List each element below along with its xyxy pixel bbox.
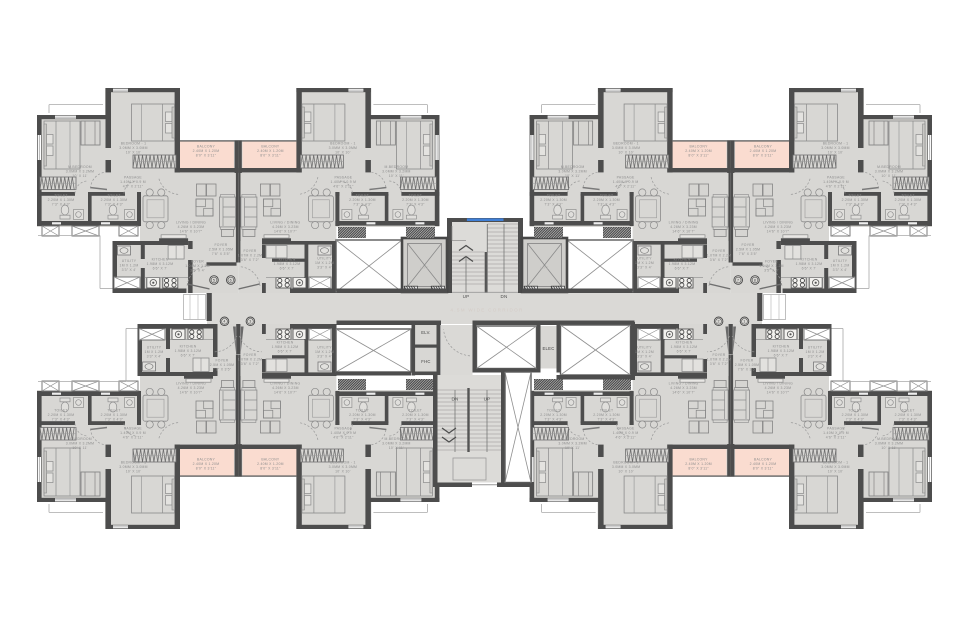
svg-text:8'0" X 3'11": 8'0" X 3'11" xyxy=(260,154,281,158)
svg-text:6'6" X 7': 6'6" X 7' xyxy=(278,349,293,353)
svg-text:3'6" X 7'2": 3'6" X 7'2" xyxy=(710,362,729,366)
svg-text:1M X 1.2M: 1M X 1.2M xyxy=(315,350,334,354)
svg-text:7'3" X 4'3": 7'3" X 4'3" xyxy=(105,203,124,207)
svg-text:4'6" X 2'11": 4'6" X 2'11" xyxy=(826,435,847,439)
svg-text:3.0MM X 3.2MM: 3.0MM X 3.2MM xyxy=(66,442,95,446)
svg-text:TOILET: TOILET xyxy=(409,409,423,413)
svg-text:KITCHEN: KITCHEN xyxy=(277,341,294,345)
svg-text:2.20M X 1.30M: 2.20M X 1.30M xyxy=(402,198,429,202)
svg-text:2.20M X 1.30M: 2.20M X 1.30M xyxy=(895,198,922,202)
svg-text:3.0MM X 3.2MM: 3.0MM X 3.2MM xyxy=(382,442,411,446)
svg-text:UTILITY: UTILITY xyxy=(147,346,162,350)
svg-text:3.0MM X 3.2MM: 3.0MM X 3.2MM xyxy=(558,170,587,174)
svg-text:BALCONY: BALCONY xyxy=(754,145,773,149)
svg-text:2.40M X 1.20M: 2.40M X 1.20M xyxy=(257,462,284,466)
svg-text:7: 7 xyxy=(737,278,739,282)
svg-text:ELEC: ELEC xyxy=(542,346,554,351)
svg-text:3'6" X 7'2": 3'6" X 7'2" xyxy=(710,258,729,262)
svg-text:10' X 11': 10' X 11' xyxy=(389,446,404,450)
svg-text:7'3" X 4'3": 7'3" X 4'3" xyxy=(544,203,563,207)
svg-text:3'3" X 4': 3'3" X 4' xyxy=(833,268,848,272)
svg-text:10' X 11': 10' X 11' xyxy=(72,446,87,450)
svg-text:3'6" X 7'2": 3'6" X 7'2" xyxy=(241,362,260,366)
svg-text:2.5M X 1.05M: 2.5M X 1.05M xyxy=(210,363,234,367)
svg-text:PASSAGE: PASSAGE xyxy=(827,427,845,431)
svg-text:2.40M X 1.20M: 2.40M X 1.20M xyxy=(750,149,777,153)
svg-text:2.40M X 1.20M: 2.40M X 1.20M xyxy=(685,462,712,466)
svg-text:3.0MM X 3.2MM: 3.0MM X 3.2MM xyxy=(382,170,411,174)
svg-text:1M X 1.2M: 1M X 1.2M xyxy=(315,261,334,265)
svg-text:2.20M X 1.30M: 2.20M X 1.30M xyxy=(593,198,620,202)
svg-text:1M X 1.2M: 1M X 1.2M xyxy=(635,350,654,354)
svg-text:BEDROOM - 1: BEDROOM - 1 xyxy=(613,461,639,465)
svg-text:TOILET: TOILET xyxy=(54,194,68,198)
svg-text:2.20M X 1.30M: 2.20M X 1.30M xyxy=(349,198,376,202)
svg-text:1.07M X 2.2M: 1.07M X 2.2M xyxy=(238,254,262,258)
svg-text:4'6" X 2'11": 4'6" X 2'11" xyxy=(123,435,144,439)
svg-text:7'6" X 3'5": 7'6" X 3'5" xyxy=(213,367,232,371)
svg-text:2.5M X 1.05M: 2.5M X 1.05M xyxy=(736,248,760,252)
svg-text:14'6" X 10'7": 14'6" X 10'7" xyxy=(767,230,790,234)
svg-text:6'6" X 7': 6'6" X 7' xyxy=(181,353,196,357)
svg-text:1.40M X 0.9 M: 1.40M X 0.9 M xyxy=(331,431,357,435)
svg-text:M.BEDROOM: M.BEDROOM xyxy=(384,165,408,169)
svg-text:1.40M X 0.9 M: 1.40M X 0.9 M xyxy=(120,431,146,435)
svg-text:3'3" X 4': 3'3" X 4' xyxy=(317,265,332,269)
svg-text:2.20M X 1.30M: 2.20M X 1.30M xyxy=(101,413,128,417)
svg-text:LIVING / DINING: LIVING / DINING xyxy=(270,382,300,386)
svg-text:TOILET: TOILET xyxy=(547,409,561,413)
svg-text:1.04M X 1.2M: 1.04M X 1.2M xyxy=(185,264,209,268)
svg-text:4.26M X 3.23M: 4.26M X 3.23M xyxy=(670,386,697,390)
svg-text:UTILITY: UTILITY xyxy=(808,346,823,350)
svg-text:4'6" X 2'11": 4'6" X 2'11" xyxy=(333,435,354,439)
svg-text:3'5" X 4': 3'5" X 4' xyxy=(190,268,205,272)
svg-text:M.BEDROOM: M.BEDROOM xyxy=(68,165,92,169)
svg-text:3.0MM X 3.2MM: 3.0MM X 3.2MM xyxy=(875,442,904,446)
svg-text:6'6" X 7': 6'6" X 7' xyxy=(677,349,692,353)
svg-text:4'6" X 2'11": 4'6" X 2'11" xyxy=(826,185,847,189)
svg-text:2.20M X 1.30M: 2.20M X 1.30M xyxy=(540,198,567,202)
svg-text:LIVING / DINING: LIVING / DINING xyxy=(176,382,206,386)
svg-text:KITCHEN: KITCHEN xyxy=(674,258,691,262)
svg-text:1.40M X 0.9 M: 1.40M X 0.9 M xyxy=(823,180,849,184)
svg-text:10' X 11': 10' X 11' xyxy=(72,174,87,178)
svg-text:2.40M X 1.20M: 2.40M X 1.20M xyxy=(685,149,712,153)
svg-text:KITCHEN: KITCHEN xyxy=(180,345,197,349)
svg-text:4.26M X 3.23M: 4.26M X 3.23M xyxy=(178,386,205,390)
svg-text:10' X 11': 10' X 11' xyxy=(881,446,896,450)
svg-text:M.BEDROOM: M.BEDROOM xyxy=(877,437,901,441)
svg-text:2.20M X 1.30M: 2.20M X 1.30M xyxy=(101,198,128,202)
svg-text:7'3" X 4'3": 7'3" X 4'3" xyxy=(52,417,71,421)
svg-text:2.20M X 1.30M: 2.20M X 1.30M xyxy=(842,198,869,202)
svg-text:UTILITY: UTILITY xyxy=(833,259,848,263)
svg-text:6'6" X 7': 6'6" X 7' xyxy=(802,266,817,270)
svg-text:3'3" X 4': 3'3" X 4' xyxy=(317,354,332,358)
svg-text:PASSAGE: PASSAGE xyxy=(827,176,845,180)
svg-text:TOILET: TOILET xyxy=(409,194,423,198)
svg-text:14'6" X 10'7": 14'6" X 10'7" xyxy=(767,390,790,394)
svg-text:LIFT: LIFT xyxy=(420,266,429,270)
svg-text:1.07M X 2.2M: 1.07M X 2.2M xyxy=(707,358,731,362)
svg-text:3'3" X 4': 3'3" X 4' xyxy=(637,354,652,358)
svg-text:1.98M X 3.12M: 1.98M X 3.12M xyxy=(768,349,795,353)
svg-text:2.20M X 1.30M: 2.20M X 1.30M xyxy=(895,413,922,417)
svg-text:FOYER: FOYER xyxy=(243,249,256,253)
svg-text:7'3" X 4'3": 7'3" X 4'3" xyxy=(597,417,616,421)
svg-text:1.98M X 3.12M: 1.98M X 3.12M xyxy=(671,345,698,349)
svg-text:3.0MM X 3.2MM: 3.0MM X 3.2MM xyxy=(558,442,587,446)
svg-text:1M X 1.2M: 1M X 1.2M xyxy=(831,264,850,268)
svg-text:1.40M X 0.9 M: 1.40M X 0.9 M xyxy=(613,431,639,435)
svg-text:1M X 1.2M: 1M X 1.2M xyxy=(145,350,164,354)
svg-text:FOYER: FOYER xyxy=(191,260,204,264)
svg-text:8'0" X 3'11": 8'0" X 3'11" xyxy=(753,466,774,470)
svg-text:TOILET: TOILET xyxy=(54,409,68,413)
svg-text:7'6" X 3'5": 7'6" X 3'5" xyxy=(738,367,757,371)
svg-text:TOILET: TOILET xyxy=(600,409,614,413)
svg-text:BEDROOM - 1: BEDROOM - 1 xyxy=(823,461,849,465)
svg-text:TOILET: TOILET xyxy=(107,409,121,413)
svg-text:4'6" X 2'11": 4'6" X 2'11" xyxy=(123,185,144,189)
svg-text:7'3" X 4'3": 7'3" X 4'3" xyxy=(52,203,71,207)
svg-text:BEDROOM - 1: BEDROOM - 1 xyxy=(613,142,639,146)
svg-text:4.26M X 3.23M: 4.26M X 3.23M xyxy=(272,225,299,229)
svg-text:10' X 10': 10' X 10' xyxy=(126,151,142,155)
svg-text:UP: UP xyxy=(463,294,470,299)
svg-text:7'3" X 4'3": 7'3" X 4'3" xyxy=(353,203,372,207)
svg-text:TOILET: TOILET xyxy=(901,194,915,198)
svg-text:KITCHEN: KITCHEN xyxy=(152,258,169,262)
svg-text:3.0MM X 3.0MM: 3.0MM X 3.0MM xyxy=(119,146,148,150)
svg-text:3.0MM X 3.0MM: 3.0MM X 3.0MM xyxy=(821,146,850,150)
svg-text:TOILET: TOILET xyxy=(848,194,862,198)
svg-text:BEDROOM - 1: BEDROOM - 1 xyxy=(121,142,147,146)
svg-text:3.0MM X 3.0MM: 3.0MM X 3.0MM xyxy=(119,465,148,469)
svg-text:BALCONY: BALCONY xyxy=(261,458,280,462)
svg-text:1M X 1.2M: 1M X 1.2M xyxy=(635,261,654,265)
svg-text:2.40M X 1.20M: 2.40M X 1.20M xyxy=(193,462,220,466)
svg-text:1.98M X 3.12M: 1.98M X 3.12M xyxy=(175,349,202,353)
svg-text:UTILITY: UTILITY xyxy=(317,346,332,350)
svg-text:10' X 10': 10' X 10' xyxy=(828,469,844,473)
svg-text:1: 1 xyxy=(743,320,745,324)
svg-text:FOYER: FOYER xyxy=(741,243,754,247)
svg-text:LIVING / DINING: LIVING / DINING xyxy=(270,221,300,225)
svg-text:LIVING / DINING: LIVING / DINING xyxy=(763,221,793,225)
svg-text:1.98M X 3.12M: 1.98M X 3.12M xyxy=(272,345,299,349)
svg-text:PASSAGE: PASSAGE xyxy=(124,427,142,431)
svg-text:PASSAGE: PASSAGE xyxy=(617,176,635,180)
svg-text:2.20M X 1.30M: 2.20M X 1.30M xyxy=(48,413,75,417)
svg-text:14'6" X 10'7": 14'6" X 10'7" xyxy=(180,390,203,394)
svg-text:3'3" X 4': 3'3" X 4' xyxy=(808,354,823,358)
svg-text:4'6" X 2'11": 4'6" X 2'11" xyxy=(333,185,354,189)
svg-text:LIVING / DINING: LIVING / DINING xyxy=(763,382,793,386)
svg-text:FOYER: FOYER xyxy=(243,353,256,357)
svg-text:8'0" X 3'11": 8'0" X 3'11" xyxy=(196,466,217,470)
svg-text:PASSAGE: PASSAGE xyxy=(617,427,635,431)
svg-text:6'6" X 7': 6'6" X 7' xyxy=(153,266,168,270)
svg-text:10' X 11': 10' X 11' xyxy=(881,174,896,178)
svg-text:LIVING / DINING: LIVING / DINING xyxy=(176,221,206,225)
svg-text:PASSAGE: PASSAGE xyxy=(124,176,142,180)
svg-text:1.98M X 3.12M: 1.98M X 3.12M xyxy=(669,262,696,266)
svg-text:BEDROOM - 1: BEDROOM - 1 xyxy=(330,461,356,465)
svg-text:8'0" X 3'11": 8'0" X 3'11" xyxy=(260,466,281,470)
svg-text:8: 8 xyxy=(754,278,756,282)
svg-text:7'3" X 4'3": 7'3" X 4'3" xyxy=(406,203,425,207)
svg-text:8'0" X 3'11": 8'0" X 3'11" xyxy=(688,466,709,470)
svg-text:7'3" X 4'3": 7'3" X 4'3" xyxy=(544,417,563,421)
svg-text:7'3" X 4'3": 7'3" X 4'3" xyxy=(353,417,372,421)
svg-text:1.07M X 2.2M: 1.07M X 2.2M xyxy=(238,358,262,362)
svg-text:FHC: FHC xyxy=(421,359,430,364)
svg-text:2.40M X 1.20M: 2.40M X 1.20M xyxy=(750,462,777,466)
svg-text:14'6" X 10'7": 14'6" X 10'7" xyxy=(274,390,297,394)
svg-text:UP: UP xyxy=(484,397,491,402)
svg-text:1.98M X 3.12M: 1.98M X 3.12M xyxy=(274,262,301,266)
svg-text:TOILET: TOILET xyxy=(901,409,915,413)
svg-text:3'3" X 4': 3'3" X 4' xyxy=(147,354,162,358)
svg-text:3'5" X 4': 3'5" X 4' xyxy=(764,268,779,272)
svg-text:TOILET: TOILET xyxy=(600,194,614,198)
svg-text:10' X 10': 10' X 10' xyxy=(335,151,351,155)
svg-text:TOILET: TOILET xyxy=(356,409,370,413)
svg-text:1M X 1.2M: 1M X 1.2M xyxy=(806,350,825,354)
svg-text:2.20M X 1.30M: 2.20M X 1.30M xyxy=(842,413,869,417)
svg-text:2.20M X 1.30M: 2.20M X 1.30M xyxy=(402,413,429,417)
svg-text:5: 5 xyxy=(213,278,215,282)
svg-text:7'3" X 4'3": 7'3" X 4'3" xyxy=(597,203,616,207)
svg-text:M.BEDROOM: M.BEDROOM xyxy=(384,437,408,441)
svg-text:2.20M X 1.30M: 2.20M X 1.30M xyxy=(540,413,567,417)
svg-text:7'6" X 3'5": 7'6" X 3'5" xyxy=(212,252,231,256)
svg-text:M.BEDROOM: M.BEDROOM xyxy=(561,165,585,169)
svg-text:2.20M X 1.30M: 2.20M X 1.30M xyxy=(349,413,376,417)
svg-text:10' X 10': 10' X 10' xyxy=(335,469,351,473)
svg-text:FOYER: FOYER xyxy=(215,359,228,363)
svg-text:M.BEDROOM: M.BEDROOM xyxy=(561,437,585,441)
svg-text:3'6" X 7'2": 3'6" X 7'2" xyxy=(241,258,260,262)
svg-text:4.26M X 3.23M: 4.26M X 3.23M xyxy=(178,225,205,229)
svg-text:BEDROOM - 1: BEDROOM - 1 xyxy=(121,461,147,465)
svg-text:1.07M X 2.2M: 1.07M X 2.2M xyxy=(707,254,731,258)
svg-text:7'3" X 4'3": 7'3" X 4'3" xyxy=(406,417,425,421)
svg-text:10' X 11': 10' X 11' xyxy=(389,174,404,178)
svg-text:7'3" X 4'3": 7'3" X 4'3" xyxy=(846,417,865,421)
svg-text:7'3" X 4'3": 7'3" X 4'3" xyxy=(846,203,865,207)
svg-text:UTILITY: UTILITY xyxy=(637,257,652,261)
svg-text:4.26M X 3.23M: 4.26M X 3.23M xyxy=(670,225,697,229)
svg-text:1.40M X 0.9 M: 1.40M X 0.9 M xyxy=(613,180,639,184)
svg-text:3'3" X 4': 3'3" X 4' xyxy=(637,265,652,269)
svg-text:6'6" X 7': 6'6" X 7' xyxy=(774,353,789,357)
svg-text:4.26M X 3.23M: 4.26M X 3.23M xyxy=(765,225,792,229)
svg-text:M.BEDROOM: M.BEDROOM xyxy=(68,437,92,441)
svg-text:PASSAGE: PASSAGE xyxy=(334,427,352,431)
svg-text:10' X 11': 10' X 11' xyxy=(565,174,580,178)
svg-text:4'6" X 2'11": 4'6" X 2'11" xyxy=(615,435,636,439)
svg-text:14'6" X 10'7": 14'6" X 10'7" xyxy=(672,230,695,234)
svg-text:UTILITY: UTILITY xyxy=(637,346,652,350)
svg-text:BALCONY: BALCONY xyxy=(754,458,773,462)
svg-text:3.0MM X 3.0MM: 3.0MM X 3.0MM xyxy=(821,465,850,469)
svg-text:3.0MM X 3.0MM: 3.0MM X 3.0MM xyxy=(329,146,358,150)
svg-text:3.0MM X 3.0MM: 3.0MM X 3.0MM xyxy=(612,465,641,469)
svg-text:TOILET: TOILET xyxy=(107,194,121,198)
svg-text:8'0" X 3'11": 8'0" X 3'11" xyxy=(688,154,709,158)
svg-text:7'6" X 3'5": 7'6" X 3'5" xyxy=(739,252,758,256)
svg-text:FOYER: FOYER xyxy=(740,359,753,363)
svg-text:3: 3 xyxy=(249,320,251,324)
svg-text:BALCONY: BALCONY xyxy=(197,458,216,462)
svg-text:3'3" X 4': 3'3" X 4' xyxy=(122,268,137,272)
svg-text:3.0MM X 3.0MM: 3.0MM X 3.0MM xyxy=(612,146,641,150)
svg-text:TOILET: TOILET xyxy=(356,194,370,198)
svg-text:1M X 1.2M: 1M X 1.2M xyxy=(120,264,139,268)
svg-text:4: 4 xyxy=(223,320,225,324)
svg-text:6: 6 xyxy=(230,278,232,282)
svg-text:1.04M X 1.2M: 1.04M X 1.2M xyxy=(759,264,783,268)
svg-text:10' X 10': 10' X 10' xyxy=(828,151,844,155)
svg-text:1.40M X 0.9 M: 1.40M X 0.9 M xyxy=(120,180,146,184)
svg-text:LIVING / DINING: LIVING / DINING xyxy=(669,382,699,386)
svg-text:1.40M X 0.9 M: 1.40M X 0.9 M xyxy=(331,180,357,184)
svg-text:2.20M X 1.30M: 2.20M X 1.30M xyxy=(48,198,75,202)
svg-text:TOILET: TOILET xyxy=(547,194,561,198)
svg-text:KITCHEN: KITCHEN xyxy=(773,345,790,349)
svg-text:2: 2 xyxy=(717,320,719,324)
svg-text:8'0" X 3'11": 8'0" X 3'11" xyxy=(753,154,774,158)
svg-text:10' X 10': 10' X 10' xyxy=(618,469,634,473)
svg-text:4'6" X 2'11": 4'6" X 2'11" xyxy=(615,185,636,189)
svg-text:7'3" X 4'3": 7'3" X 4'3" xyxy=(899,417,918,421)
svg-text:6'6" X 7': 6'6" X 7' xyxy=(675,266,690,270)
svg-text:7'3" X 4'3": 7'3" X 4'3" xyxy=(105,417,124,421)
svg-text:2.40M X 1.20M: 2.40M X 1.20M xyxy=(257,149,284,153)
svg-text:8'0" X 3'11": 8'0" X 3'11" xyxy=(196,154,217,158)
svg-text:2.5M X 1.05M: 2.5M X 1.05M xyxy=(735,363,759,367)
svg-text:1.40M X 0.9 M: 1.40M X 0.9 M xyxy=(823,431,849,435)
svg-text:DN: DN xyxy=(451,397,458,402)
svg-text:3.0MM X 3.2MM: 3.0MM X 3.2MM xyxy=(875,170,904,174)
svg-text:BEDROOM - 1: BEDROOM - 1 xyxy=(330,142,356,146)
svg-text:7'3" X 4'3": 7'3" X 4'3" xyxy=(899,203,918,207)
svg-text:BALCONY: BALCONY xyxy=(690,458,709,462)
svg-text:LIFT: LIFT xyxy=(540,266,549,270)
svg-text:4.26M X 3.23M: 4.26M X 3.23M xyxy=(765,386,792,390)
svg-text:3.0MM X 3.0MM: 3.0MM X 3.0MM xyxy=(329,465,358,469)
svg-text:4.26M X 3.23M: 4.26M X 3.23M xyxy=(272,386,299,390)
svg-text:14'6" X 10'7": 14'6" X 10'7" xyxy=(274,230,297,234)
svg-text:KITCHEN: KITCHEN xyxy=(801,258,818,262)
svg-text:ELV.: ELV. xyxy=(421,330,431,335)
svg-text:FOYER: FOYER xyxy=(712,353,725,357)
svg-text:6'6" X 7': 6'6" X 7' xyxy=(280,266,295,270)
svg-text:2.40M X 1.20M: 2.40M X 1.20M xyxy=(193,149,220,153)
svg-text:M.BEDROOM: M.BEDROOM xyxy=(877,165,901,169)
svg-text:UTILITY: UTILITY xyxy=(122,259,137,263)
svg-text:FOYER: FOYER xyxy=(765,260,778,264)
svg-text:1.98M X 3.12M: 1.98M X 3.12M xyxy=(147,262,174,266)
svg-text:BEDROOM - 1: BEDROOM - 1 xyxy=(823,142,849,146)
svg-text:3.0MM X 3.2MM: 3.0MM X 3.2MM xyxy=(66,170,95,174)
svg-text:14'6" X 10'7": 14'6" X 10'7" xyxy=(180,230,203,234)
svg-text:FOYER: FOYER xyxy=(214,243,227,247)
svg-text:FOYER: FOYER xyxy=(712,249,725,253)
svg-text:PASSAGE: PASSAGE xyxy=(334,176,352,180)
svg-text:2.20M X 1.30M: 2.20M X 1.30M xyxy=(593,413,620,417)
svg-text:LIVING / DINING: LIVING / DINING xyxy=(669,221,699,225)
svg-text:KITCHEN: KITCHEN xyxy=(676,341,693,345)
svg-text:1.98M X 3.12M: 1.98M X 3.12M xyxy=(796,262,823,266)
svg-text:4.5M WIDE CORRIDOR: 4.5M WIDE CORRIDOR xyxy=(450,308,523,313)
svg-text:UTILITY: UTILITY xyxy=(317,257,332,261)
svg-text:BALCONY: BALCONY xyxy=(197,145,216,149)
svg-text:10' X 11': 10' X 11' xyxy=(565,446,580,450)
svg-text:10' X 10': 10' X 10' xyxy=(126,469,142,473)
svg-text:14'6" X 10'7": 14'6" X 10'7" xyxy=(672,390,695,394)
svg-text:10' X 10': 10' X 10' xyxy=(618,151,634,155)
svg-text:BALCONY: BALCONY xyxy=(690,145,709,149)
svg-text:BALCONY: BALCONY xyxy=(261,145,280,149)
svg-text:TOILET: TOILET xyxy=(848,409,862,413)
svg-text:KITCHEN: KITCHEN xyxy=(279,258,296,262)
svg-text:DN: DN xyxy=(500,294,507,299)
svg-text:2.5M X 1.05M: 2.5M X 1.05M xyxy=(209,248,233,252)
